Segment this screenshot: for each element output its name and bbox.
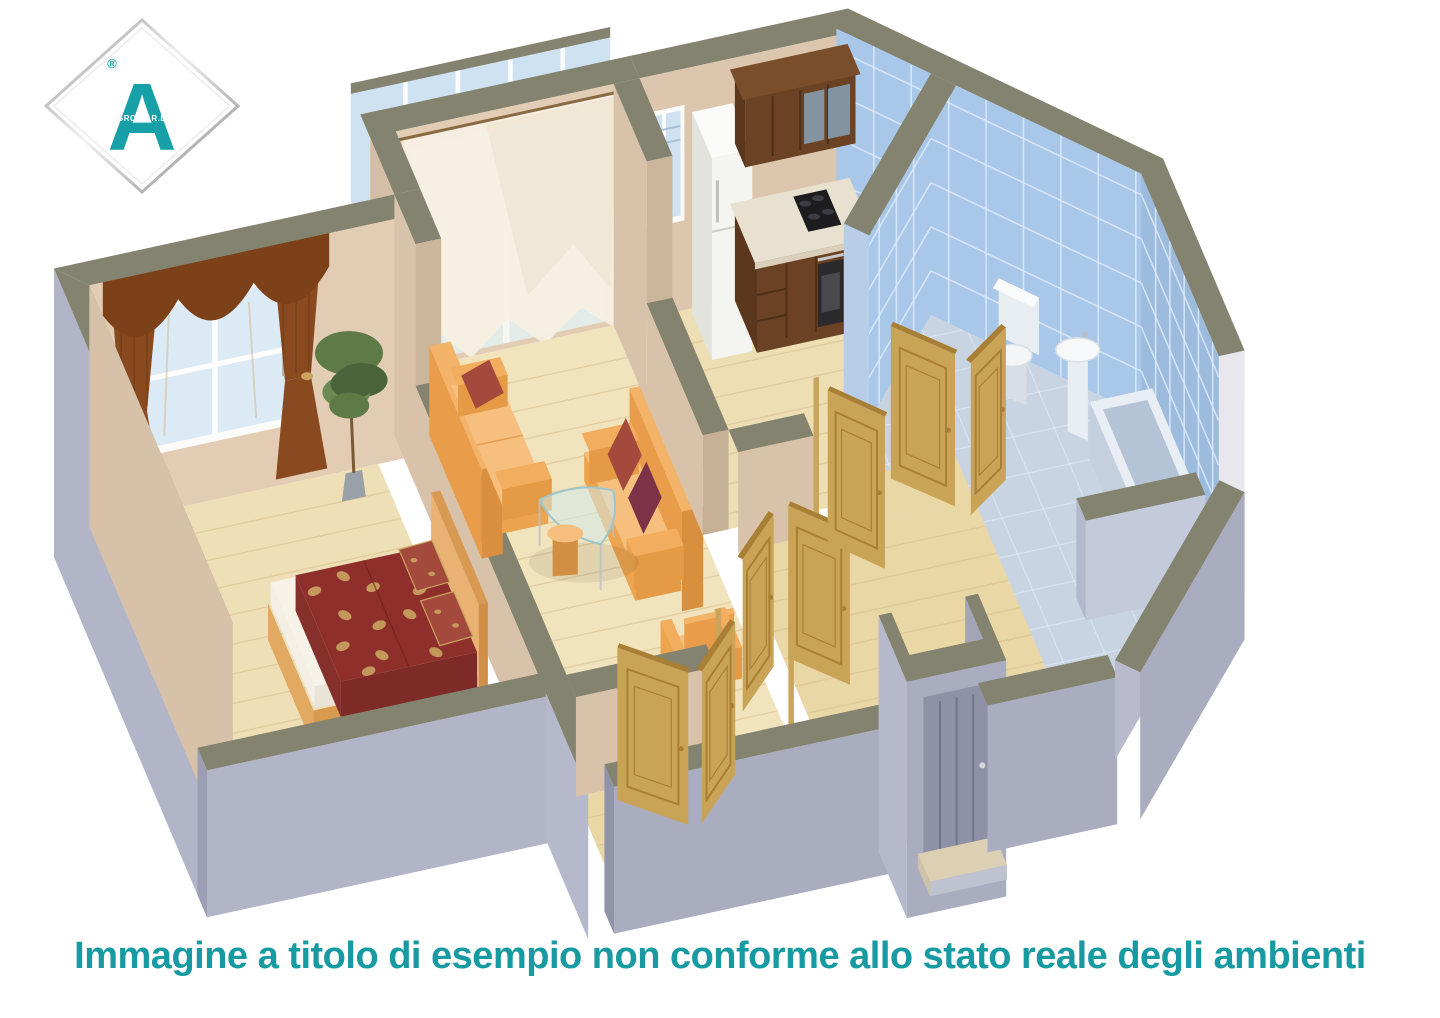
real-estate-listing-image: A ® GROUP R.E. Immagine a titolo di esem… xyxy=(0,0,1440,1018)
agency-logo: A ® GROUP R.E. xyxy=(46,20,238,192)
entry-door-knob xyxy=(979,762,985,768)
plant-pot xyxy=(342,470,366,502)
disclaimer-caption: Immagine a titolo di esempio non conform… xyxy=(0,934,1440,980)
floor-plan-3d-render: A ® GROUP R.E. xyxy=(0,0,1440,1018)
logo-subtext: GROUP R.E. xyxy=(117,114,169,123)
logo-registered-mark: ® xyxy=(107,56,117,71)
apartment-floor-plan xyxy=(54,9,1278,940)
